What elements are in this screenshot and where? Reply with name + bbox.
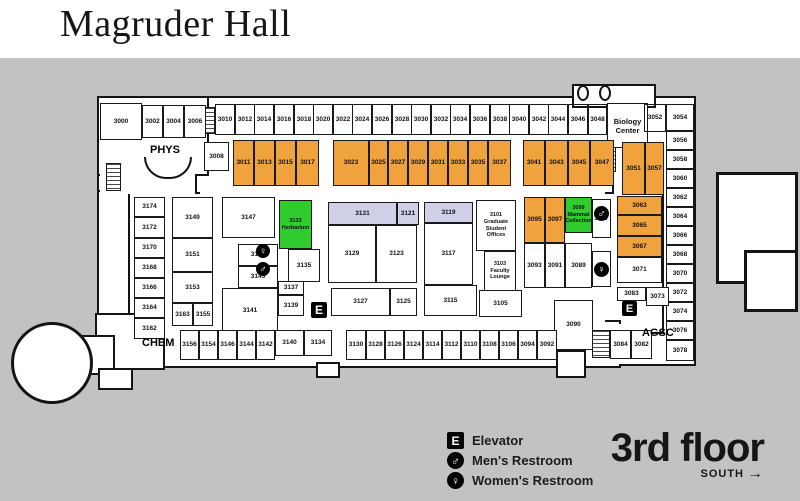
room-3084: 3084 <box>610 330 631 359</box>
room-3108: 3108 <box>480 330 499 360</box>
room-label: 3084 <box>613 341 627 349</box>
room-label: 3123 <box>389 250 403 258</box>
room-label: 3068 <box>673 251 687 259</box>
room-label: 3121 <box>401 210 415 218</box>
room-3149: 3149 <box>172 197 213 238</box>
room-3033: 3033 <box>448 140 468 186</box>
room-label: 3031 <box>431 159 445 167</box>
room-3133: 3133Herbarium <box>279 200 312 249</box>
room-label: 3119 <box>441 209 455 217</box>
room-label: 3045 <box>572 159 586 167</box>
room-3154: 3154 <box>199 330 218 360</box>
room-3115: 3115 <box>424 285 477 316</box>
room-3057: 3057 <box>645 142 664 195</box>
room-3103: 3103FacultyLounge <box>484 251 516 291</box>
mens-restroom-icon: ♂ <box>447 452 464 469</box>
room-3026: 3026 <box>372 104 392 135</box>
room-label: 3166 <box>142 284 156 292</box>
room-label: 3124 <box>406 341 420 349</box>
room-label: 3011 <box>236 159 250 167</box>
room-3135: 3135 <box>288 249 320 282</box>
room-label: 3051 <box>626 165 640 173</box>
room-3071: 3071 <box>617 257 662 283</box>
room-label: 3044 <box>551 116 565 124</box>
room-3042: 3042 <box>529 104 549 135</box>
room-label: 3004 <box>166 118 180 126</box>
room-label: 3128 <box>368 341 382 349</box>
room-3054: 3054 <box>666 104 694 131</box>
room-label: 3156 <box>182 341 196 349</box>
room-3044: 3044 <box>548 104 568 135</box>
room-label: 3056 <box>673 137 687 145</box>
room-3074: 3074 <box>666 302 694 321</box>
room-label: 3072 <box>673 289 687 297</box>
room-label: 3089 <box>571 262 585 270</box>
room-3048: 3048 <box>588 104 607 135</box>
room-label: 3141 <box>243 307 257 315</box>
room-3063: 3063 <box>617 196 662 215</box>
building-footprint <box>98 368 133 390</box>
stairs <box>106 163 121 191</box>
room-label: 3147 <box>241 214 255 222</box>
room-label: 3020 <box>316 116 330 124</box>
south-arrow-icon: → <box>747 469 764 479</box>
page-title: Magruder Hall <box>60 2 291 46</box>
room-3010: 3010 <box>215 104 235 135</box>
legend-label: Men's Restroom <box>472 453 573 468</box>
room-3156: 3156 <box>180 330 199 360</box>
floorplan-canvas: Magruder Hall 30103012301430163018302030… <box>0 0 800 501</box>
womens-restroom-icon: ♀ <box>447 472 464 489</box>
room-label: 3151 <box>185 251 199 259</box>
room-label: 3038 <box>493 116 507 124</box>
room-label: 3024 <box>355 116 369 124</box>
room-3091: 3091 <box>545 243 565 288</box>
room-label: 3092 <box>540 341 554 349</box>
room-3101: 3101Graduate StudentOffices <box>476 200 516 251</box>
room-label: 3097 <box>548 216 562 224</box>
room-label: Collection <box>565 218 592 225</box>
room-3068: 3068 <box>666 245 694 264</box>
room-label: 3155 <box>196 311 210 319</box>
room-label: 3062 <box>673 194 687 202</box>
room-3166: 3166 <box>134 278 165 298</box>
room-label: 3054 <box>673 114 687 122</box>
room-label: 3012 <box>238 116 252 124</box>
room-3110: 3110 <box>461 330 480 360</box>
room-3089: 3089 <box>565 243 592 288</box>
room-label: 3006 <box>188 118 202 126</box>
room-3124: 3124 <box>404 330 423 360</box>
room-label: 3063 <box>632 202 646 210</box>
room-label: 3162 <box>142 325 156 333</box>
room-label: 3071 <box>632 266 646 274</box>
womens-restroom-icon: ♀ <box>256 244 270 258</box>
room-3123: 3123 <box>376 225 417 283</box>
legend-row: ♂Men's Restroom <box>447 452 593 469</box>
room-label: 3094 <box>520 341 534 349</box>
room-label: 3153 <box>185 284 199 292</box>
room-3090: 3090 <box>554 300 593 350</box>
room-label: 3013 <box>257 159 271 167</box>
room-3016: 3016 <box>274 104 294 135</box>
room-label: 3028 <box>395 116 409 124</box>
room-label: Mammal <box>567 212 589 219</box>
room-3002: 3002 <box>142 105 163 138</box>
area-label-agsc: AGSC <box>642 327 674 339</box>
room-label: 3093 <box>527 262 541 270</box>
room-3095: 3095 <box>524 197 545 243</box>
room-label: 3067 <box>632 243 646 251</box>
room-label: 3070 <box>673 270 687 278</box>
room-label: 3101 <box>490 212 502 219</box>
legend-row: ♀Women's Restroom <box>447 472 593 489</box>
room-3163: 3163 <box>172 303 193 326</box>
room-label: 3135 <box>297 262 311 270</box>
room-3056: 3056 <box>666 131 694 150</box>
room-3038: 3038 <box>490 104 510 135</box>
room-3142: 3142 <box>256 330 275 360</box>
room-label: 3117 <box>441 250 455 258</box>
room-3139: 3139 <box>278 295 304 316</box>
room-label: 3030 <box>414 116 428 124</box>
room-3015: 3015 <box>275 140 296 186</box>
room-3066: 3066 <box>666 226 694 245</box>
room-label: 3103 <box>494 261 506 268</box>
room-3031: 3031 <box>428 140 448 186</box>
room-3023: 3023 <box>333 140 369 186</box>
room-label: 3036 <box>473 116 487 124</box>
room-3070: 3070 <box>666 264 694 283</box>
room-3073: 3073 <box>646 287 669 306</box>
room-3112: 3112 <box>442 330 461 360</box>
entrance-column <box>599 85 611 101</box>
room-3036: 3036 <box>470 104 490 135</box>
room-label: 3016 <box>277 116 291 124</box>
room-3029: 3029 <box>408 140 428 186</box>
room-label: 3106 <box>501 341 515 349</box>
stairs <box>592 330 610 358</box>
room-3153: 3153 <box>172 272 213 303</box>
room-label: 3099 <box>572 205 584 212</box>
room-label: 3027 <box>391 159 405 167</box>
room-label: 3140 <box>282 339 296 347</box>
room-3065: 3065 <box>617 215 662 236</box>
legend: EElevator♂Men's Restroom♀Women's Restroo… <box>447 432 593 489</box>
room-3072: 3072 <box>666 283 694 302</box>
room-label: 3035 <box>471 159 485 167</box>
room-3164: 3164 <box>134 298 165 318</box>
room-3014: 3014 <box>254 104 274 135</box>
room-3168: 3168 <box>134 258 165 278</box>
room-label: 3090 <box>566 321 580 329</box>
elevator-icon: E <box>447 432 464 449</box>
room-label: 3060 <box>673 175 687 183</box>
room-label: 3126 <box>387 341 401 349</box>
room-3129: 3129 <box>328 225 376 283</box>
room-3018: 3018 <box>294 104 314 135</box>
building-footprint <box>11 322 93 404</box>
room-3172: 3172 <box>134 217 165 238</box>
room-label: 3076 <box>673 327 687 335</box>
room-3141: 3141 <box>222 288 278 333</box>
room-label: 3131 <box>355 210 369 218</box>
room-3043: 3043 <box>545 140 568 186</box>
room-3170: 3170 <box>134 238 165 258</box>
room-label: 3129 <box>345 250 359 258</box>
room-3024: 3024 <box>352 104 372 135</box>
room-label: 3022 <box>336 116 350 124</box>
room-label: 3172 <box>142 224 156 232</box>
room-3012: 3012 <box>235 104 255 135</box>
room-label: 3134 <box>311 339 325 347</box>
room-3130: 3130 <box>346 330 366 360</box>
room-label: Center <box>616 126 640 135</box>
room-3078: 3078 <box>666 340 694 361</box>
direction-text: SOUTH <box>701 468 745 480</box>
legend-label: Elevator <box>472 433 523 448</box>
room-3147: 3147 <box>222 197 275 238</box>
room-3020: 3020 <box>313 104 333 135</box>
room-label: 3029 <box>411 159 425 167</box>
room-3006: 3006 <box>184 105 206 138</box>
room-label: 3137 <box>284 284 298 292</box>
legend-label: Women's Restroom <box>472 473 593 488</box>
room-label: 3040 <box>512 116 526 124</box>
room-label: 3014 <box>257 116 271 124</box>
room-label: 3168 <box>142 264 156 272</box>
room-3099: 3099MammalCollection <box>565 197 592 233</box>
room-label: 3083 <box>624 290 638 298</box>
room-3017: 3017 <box>296 140 319 186</box>
room-label: 3074 <box>673 308 687 316</box>
room-3022: 3022 <box>333 104 353 135</box>
room-label: 3078 <box>673 347 687 355</box>
mens-restroom-icon: ♂ <box>594 206 609 221</box>
room-3034: 3034 <box>450 104 470 135</box>
room-3052: 3052 <box>644 104 666 132</box>
room-3128: 3128 <box>366 330 385 360</box>
womens-restroom-icon: ♀ <box>594 262 609 277</box>
building-footprint <box>744 250 798 312</box>
room-3027: 3027 <box>388 140 408 186</box>
room-label: 3142 <box>258 341 272 349</box>
room-label: 3108 <box>482 341 496 349</box>
room-label: 3042 <box>532 116 546 124</box>
room-3035: 3035 <box>468 140 488 186</box>
room-label: 3105 <box>493 300 507 308</box>
room-3062: 3062 <box>666 188 694 207</box>
room-label: 3023 <box>344 159 358 167</box>
room-3064: 3064 <box>666 207 694 226</box>
room-label: 3125 <box>396 298 410 306</box>
room-label: 3146 <box>220 341 234 349</box>
room-label: 3032 <box>434 116 448 124</box>
room-3037: 3037 <box>488 140 511 186</box>
room-label: 3002 <box>145 118 159 126</box>
room-3114: 3114 <box>423 330 442 360</box>
room-label: 3091 <box>548 262 562 270</box>
room-label: Graduate Student <box>477 219 515 233</box>
room-3041: 3041 <box>523 140 545 186</box>
room-label: 3163 <box>175 311 189 319</box>
room-label: 3026 <box>375 116 389 124</box>
room-3067: 3067 <box>617 236 662 257</box>
room-3040: 3040 <box>509 104 529 135</box>
room-3106: 3106 <box>499 330 518 360</box>
room-label: Herbarium <box>282 225 310 232</box>
room-3121: 3121 <box>397 202 419 225</box>
room-label: 3017 <box>300 159 314 167</box>
room-3117: 3117 <box>424 223 473 285</box>
room-label: 3144 <box>239 341 253 349</box>
room-3030: 3030 <box>411 104 431 135</box>
room-label: 3010 <box>218 116 232 124</box>
room-3046: 3046 <box>568 104 588 135</box>
room-3146: 3146 <box>218 330 237 360</box>
room-3058: 3058 <box>666 150 694 169</box>
building-footprint <box>556 350 586 378</box>
room-3028: 3028 <box>392 104 412 135</box>
room-label: 3025 <box>371 159 385 167</box>
room-label: 3041 <box>527 159 541 167</box>
room-3105: 3105 <box>479 290 522 317</box>
room-label: 3127 <box>353 298 367 306</box>
room-3144: 3144 <box>237 330 256 360</box>
room-3119: 3119 <box>424 202 473 223</box>
room-label: 3149 <box>185 214 199 222</box>
room-label: Offices <box>487 232 506 239</box>
room-3174: 3174 <box>134 197 165 217</box>
room-3094: 3094 <box>518 330 537 360</box>
room-label: 3048 <box>590 116 604 124</box>
room-3093: 3093 <box>524 243 545 288</box>
room-3000: 3000 <box>100 103 142 140</box>
room-label: Faculty <box>490 268 509 275</box>
room-label: 3046 <box>571 116 585 124</box>
room-label: 3008 <box>209 153 223 161</box>
elevator-icon: E <box>622 301 637 316</box>
room-label: Lounge <box>490 274 510 281</box>
room-label: 3110 <box>463 341 477 349</box>
room-label: 3139 <box>284 302 298 310</box>
room-3004: 3004 <box>163 105 184 138</box>
area-label-chem: CHEM <box>142 337 174 349</box>
room-3013: 3013 <box>254 140 275 186</box>
room-3060: 3060 <box>666 169 694 188</box>
legend-row: EElevator <box>447 432 593 449</box>
room-3025: 3025 <box>369 140 388 186</box>
room-3032: 3032 <box>431 104 451 135</box>
room-3151: 3151 <box>172 238 213 272</box>
room-3140: 3140 <box>275 330 304 356</box>
room-3134: 3134 <box>304 330 332 356</box>
room-3097: 3097 <box>545 197 565 243</box>
room-3125: 3125 <box>390 288 417 316</box>
building-footprint <box>316 362 340 378</box>
room-label: 3043 <box>549 159 563 167</box>
room-3126: 3126 <box>385 330 404 360</box>
room-label: 3112 <box>444 341 458 349</box>
room-label: 3130 <box>349 341 363 349</box>
room-label: 3058 <box>673 156 687 164</box>
room-label: 3095 <box>527 216 541 224</box>
room-label: 3034 <box>453 116 467 124</box>
room-label: 3037 <box>492 159 506 167</box>
room-label: 3000 <box>114 118 128 126</box>
room-label: 3174 <box>142 203 156 211</box>
room-3047: 3047 <box>590 140 614 186</box>
room-3137: 3137 <box>278 281 304 295</box>
room-label: 3065 <box>632 222 646 230</box>
room-3131: 3131 <box>328 202 397 225</box>
room-label: Biology <box>614 117 642 126</box>
room-label: 3133 <box>289 218 301 225</box>
room-label: 3052 <box>648 114 662 122</box>
room-label: 3170 <box>142 244 156 252</box>
room-3083: 3083 <box>617 287 646 301</box>
room-3045: 3045 <box>568 140 590 186</box>
entrance-column <box>577 85 589 101</box>
room-label: 3154 <box>201 341 215 349</box>
room-3008: 3008 <box>204 142 229 171</box>
room-3162: 3162 <box>134 318 165 339</box>
room-3155: 3155 <box>193 303 213 326</box>
room-label: 3066 <box>673 232 687 240</box>
floor-name: 3rd floor <box>606 428 764 468</box>
room-3092: 3092 <box>537 330 557 360</box>
room-label: 3047 <box>595 159 609 167</box>
room-label: 3164 <box>142 304 156 312</box>
room-3011: 3011 <box>233 140 254 186</box>
room-label: 3057 <box>647 165 661 173</box>
room-label: 3073 <box>650 293 664 301</box>
room-3127: 3127 <box>331 288 390 316</box>
room-label: 3082 <box>634 341 648 349</box>
room-label: 3114 <box>425 341 439 349</box>
room-label: 3115 <box>443 297 457 305</box>
mens-restroom-icon: ♂ <box>256 262 270 276</box>
room-3051: 3051 <box>622 142 645 195</box>
room-label: 3033 <box>451 159 465 167</box>
area-label-phys: PHYS <box>150 144 180 156</box>
floor-label: 3rd floor SOUTH → <box>606 428 764 480</box>
room-label: 3015 <box>278 159 292 167</box>
room-label: 3064 <box>673 213 687 221</box>
room-label: 3018 <box>297 116 311 124</box>
elevator-icon: E <box>311 302 327 318</box>
